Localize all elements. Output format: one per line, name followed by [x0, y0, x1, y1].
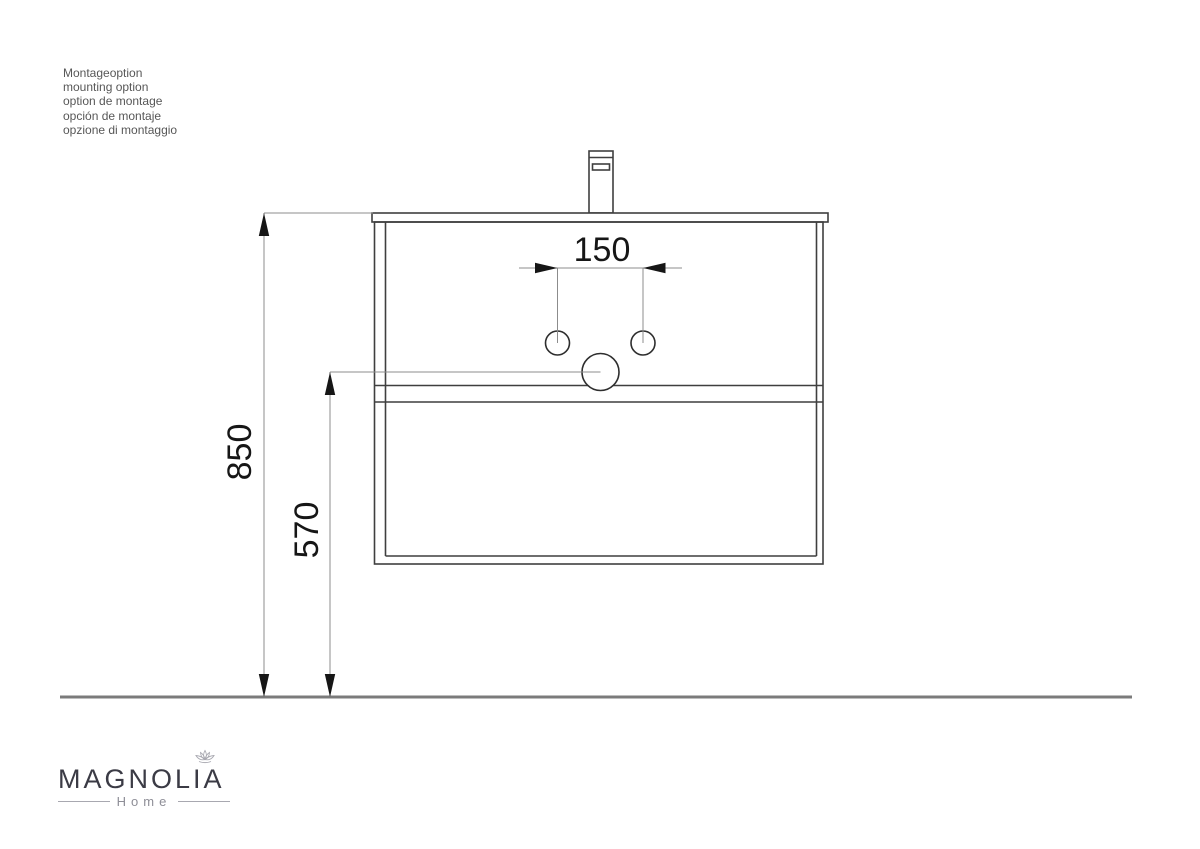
arrow-down-icon: [259, 674, 269, 697]
technical-drawing-page: Montageoption mounting option option de …: [0, 0, 1200, 849]
cabinet-outer-frame: [375, 222, 824, 564]
dim-label-850: 850: [221, 424, 259, 481]
dim-label-570: 570: [288, 502, 326, 559]
brand-name: MAGNOLIA: [58, 764, 230, 794]
dim-label-150: 150: [574, 231, 631, 269]
countertop: [372, 213, 828, 222]
tagline-right-rule: [178, 801, 230, 802]
brand-tagline: Home: [110, 794, 179, 809]
arrow-right-icon: [535, 263, 558, 273]
dimension-570: 570: [288, 372, 601, 697]
mounting-holes: [546, 331, 656, 355]
arrow-down-icon: [325, 674, 335, 697]
arrow-up-icon: [259, 213, 269, 236]
arrow-up-icon: [325, 372, 335, 395]
dimension-850: 850: [221, 213, 373, 697]
faucet: [589, 151, 613, 213]
arrow-left-icon: [643, 263, 666, 273]
vanity-technical-drawing: 850 570 150: [0, 0, 1200, 849]
brand-logo: MAGNOLIA Home: [58, 749, 230, 808]
dimension-150: 150: [519, 231, 682, 343]
magnolia-flower-icon: [194, 749, 230, 764]
brand-tagline-row: Home: [58, 794, 230, 808]
tagline-left-rule: [58, 801, 110, 802]
